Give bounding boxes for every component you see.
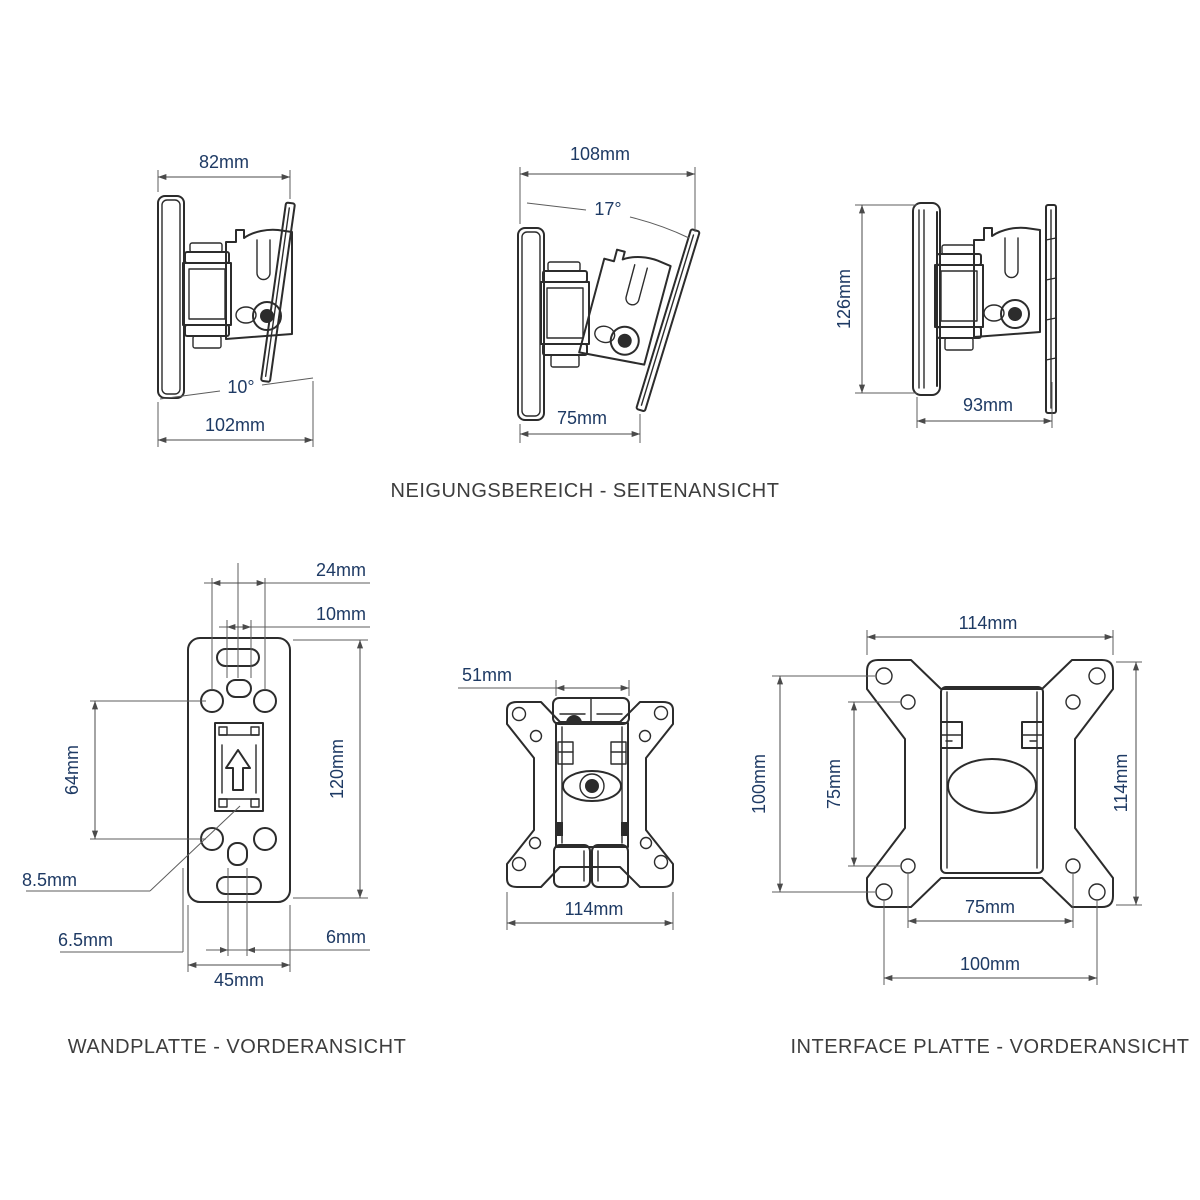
dim-depth: 93mm — [917, 382, 1052, 428]
dim-label-93mm: 93mm — [963, 395, 1013, 415]
dim-label-100mm-left: 100mm — [749, 754, 769, 814]
dim-label-8-5mm: 8.5mm — [22, 870, 77, 890]
caption-side-views: NEIGUNGSBEREICH - SEITENANSICHT — [391, 480, 780, 502]
slide-lock-detail — [215, 723, 263, 811]
dim-inner-hole-spacing-horizontal: 75mm — [908, 874, 1073, 928]
dim-plate-height: 114mm — [1111, 662, 1142, 905]
dim-label-10deg: 10° — [227, 377, 254, 397]
dim-top-hole-spacing: 24mm — [204, 560, 370, 690]
dim-label-6mm: 6mm — [326, 927, 366, 947]
dim-label-51mm: 51mm — [462, 665, 512, 685]
dim-inner-hole-spacing-vertical: 75mm — [824, 702, 900, 866]
dim-label-100mm-bottom: 100mm — [960, 954, 1020, 974]
interface-plate-outline — [867, 660, 1113, 907]
clamp-block — [183, 243, 231, 348]
dim-label-126mm: 126mm — [834, 269, 854, 329]
dim-plate-height: 120mm — [293, 640, 368, 898]
dim-label-64mm: 64mm — [62, 745, 82, 795]
tilt-bracket — [226, 230, 292, 339]
dim-label-102mm: 102mm — [205, 415, 265, 435]
dim-tilt-angle: 17° — [527, 199, 689, 238]
dim-height: 126mm — [834, 205, 917, 393]
caption-wall-plate: WANDPLATTE - VORDERANSICHT — [68, 1036, 407, 1058]
dim-label-75mm-bottom: 75mm — [965, 897, 1015, 917]
dim-plate-width: 114mm — [507, 892, 673, 930]
dim-label-75mm-left: 75mm — [824, 759, 844, 809]
dim-top-width: 82mm — [158, 152, 290, 199]
dim-plate-width: 114mm — [867, 613, 1113, 655]
dim-label-114mm-right: 114mm — [1111, 754, 1131, 813]
side-view-tilt-up: 108mm 17° 75mm — [518, 144, 700, 443]
dim-vertical-hole-spacing: 64mm — [62, 701, 206, 839]
dim-label-17deg: 17° — [594, 199, 621, 219]
caption-interface-plate: INTERFACE PLATTE - VORDERANSICHT — [790, 1036, 1189, 1058]
interface-plate-side-profile — [636, 229, 700, 411]
dim-label-75mm: 75mm — [557, 408, 607, 428]
dim-label-114mm: 114mm — [565, 899, 624, 919]
interface-plate-front-view: 114mm 100mm 75mm 114mm 75mm — [749, 613, 1142, 985]
dim-label-10mm: 10mm — [316, 604, 366, 624]
dim-label-108mm: 108mm — [570, 144, 630, 164]
center-channel — [941, 687, 1043, 873]
up-arrow-icon — [226, 750, 250, 790]
dim-tilt-angle: 10° — [160, 377, 313, 399]
side-view-neutral: 126mm 93mm — [834, 203, 1056, 428]
interface-plate-side-profile — [1046, 205, 1056, 413]
wall-plate-front-view: 24mm 10mm 64mm 120mm 8.5mm — [22, 560, 370, 990]
dim-label-114mm-top: 114mm — [959, 613, 1018, 633]
dim-label-120mm: 120mm — [327, 739, 347, 799]
dim-label-45mm: 45mm — [214, 970, 264, 990]
dim-bracket-width: 51mm — [458, 665, 629, 696]
dim-bottom-width: 75mm — [520, 408, 640, 443]
dim-label-24mm: 24mm — [316, 560, 366, 580]
clamp-block — [935, 245, 983, 350]
dim-label-6-5mm: 6.5mm — [58, 930, 113, 950]
side-view-tilt-down: 82mm 10° 102mm — [158, 152, 313, 447]
bracket-body — [553, 698, 629, 887]
assembly-front-view: 51mm 114mm — [458, 665, 673, 930]
wall-plate-side-profile — [158, 196, 184, 398]
dim-bottom-slot-width: 6mm — [206, 868, 370, 956]
clamp-block — [541, 262, 589, 367]
dim-plate-width: 45mm — [188, 905, 290, 990]
dim-label-82mm: 82mm — [199, 152, 249, 172]
dim-outer-hole-spacing-vertical: 100mm — [749, 676, 875, 892]
wall-plate-outline — [188, 638, 290, 902]
technical-drawing-sheet: 82mm 10° 102mm 108mm — [0, 0, 1200, 1200]
